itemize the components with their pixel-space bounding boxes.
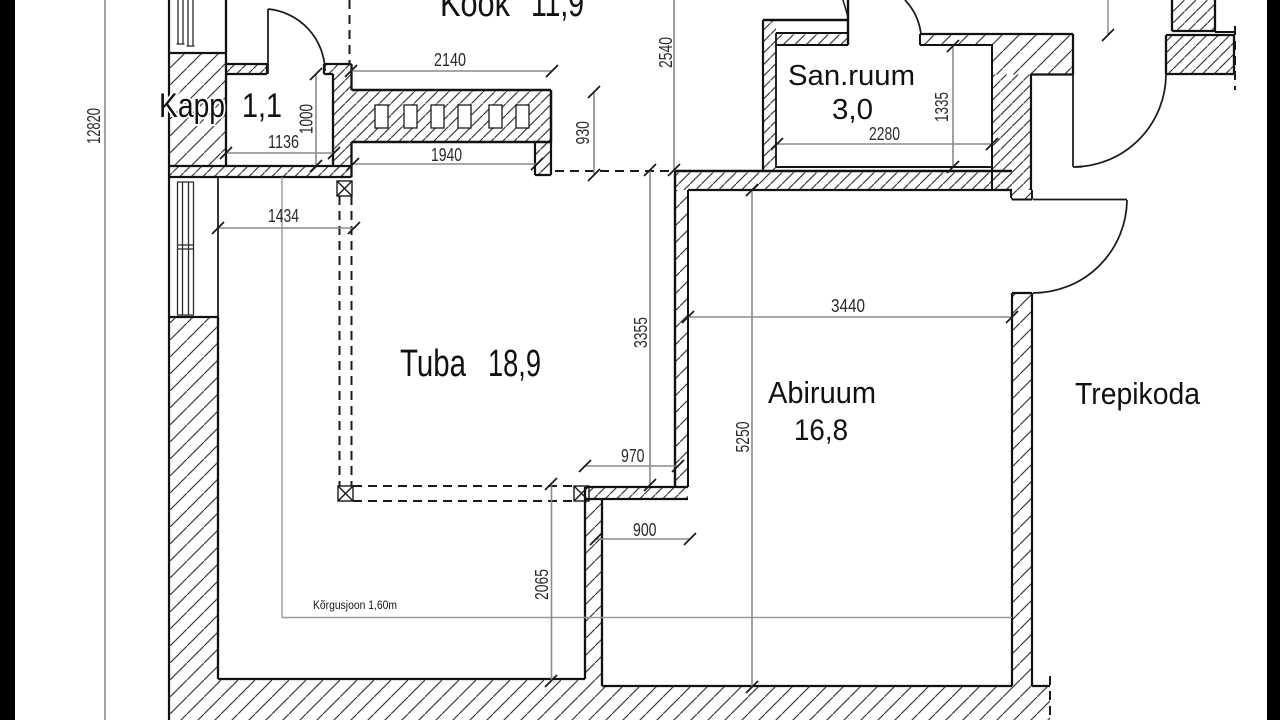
svg-text:Abiruum: Abiruum: [768, 375, 876, 410]
svg-text:Kapp: Kapp: [159, 87, 225, 125]
svg-text:2140: 2140: [434, 50, 466, 70]
svg-text:930: 930: [573, 121, 593, 145]
svg-text:San.ruum: San.ruum: [788, 60, 915, 92]
svg-text:12820: 12820: [84, 108, 104, 144]
svg-text:2280: 2280: [869, 124, 900, 144]
svg-text:2065: 2065: [532, 569, 552, 600]
svg-text:3,0: 3,0: [832, 94, 873, 126]
svg-text:Kook: Kook: [440, 0, 511, 25]
svg-text:970: 970: [621, 446, 645, 466]
svg-text:1434: 1434: [268, 206, 299, 226]
svg-text:900: 900: [633, 520, 657, 540]
svg-text:Tuba: Tuba: [400, 343, 467, 385]
svg-text:1940: 1940: [431, 145, 462, 165]
svg-text:18,9: 18,9: [488, 343, 541, 385]
svg-text:1000: 1000: [297, 104, 317, 134]
svg-text:2540: 2540: [656, 37, 676, 68]
svg-text:Kõrgusjoon 1,60m: Kõrgusjoon 1,60m: [313, 600, 397, 612]
svg-text:Trepikoda: Trepikoda: [1075, 376, 1201, 411]
svg-text:16,8: 16,8: [794, 414, 848, 447]
svg-text:11,9: 11,9: [531, 0, 584, 25]
svg-text:1136: 1136: [268, 132, 299, 152]
svg-text:1335: 1335: [932, 92, 952, 122]
svg-text:3440: 3440: [831, 296, 865, 316]
svg-text:1,1: 1,1: [242, 87, 282, 125]
svg-text:5250: 5250: [733, 422, 753, 453]
svg-text:3355: 3355: [631, 317, 651, 348]
